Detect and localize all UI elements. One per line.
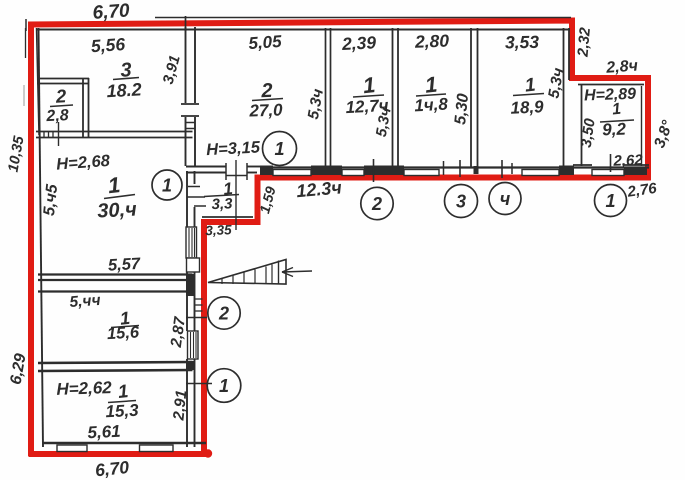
svg-text:2,8: 2,8 <box>45 107 69 125</box>
svg-text:5,57: 5,57 <box>108 255 142 275</box>
svg-text:2,8ч: 2,8ч <box>605 58 639 77</box>
svg-text:1: 1 <box>107 172 122 198</box>
svg-text:5,56: 5,56 <box>90 34 126 56</box>
svg-text:30,ч: 30,ч <box>97 198 138 222</box>
svg-text:1: 1 <box>524 75 537 97</box>
svg-text:3,3: 3,3 <box>211 195 233 213</box>
svg-text:1: 1 <box>162 175 172 195</box>
svg-text:H=2,62: H=2,62 <box>56 378 112 399</box>
svg-text:18.2: 18.2 <box>106 79 142 101</box>
svg-text:1: 1 <box>605 191 615 211</box>
svg-text:1: 1 <box>362 72 377 98</box>
svg-text:1: 1 <box>274 139 284 159</box>
svg-text:1: 1 <box>117 380 129 402</box>
svg-text:6,70: 6,70 <box>94 457 130 480</box>
svg-text:5,61: 5,61 <box>87 422 121 443</box>
svg-text:3,35: 3,35 <box>205 222 232 238</box>
svg-text:2: 2 <box>218 303 229 323</box>
svg-text:2: 2 <box>371 194 382 214</box>
svg-text:15,6: 15,6 <box>107 323 141 343</box>
svg-text:3: 3 <box>456 191 466 211</box>
svg-text:5,ч5: 5,ч5 <box>41 182 61 216</box>
svg-text:1: 1 <box>219 376 229 396</box>
svg-text:2,80: 2,80 <box>414 31 450 52</box>
svg-text:6,70: 6,70 <box>92 0 131 24</box>
svg-text:12.3ч: 12.3ч <box>295 177 343 201</box>
svg-text:5,30: 5,30 <box>452 93 472 126</box>
svg-text:27,0: 27,0 <box>248 100 283 120</box>
svg-text:ч: ч <box>500 189 511 209</box>
svg-text:2: 2 <box>54 85 67 107</box>
svg-text:H=2,89: H=2,89 <box>584 86 637 105</box>
svg-text:9,2: 9,2 <box>602 120 627 140</box>
svg-text:15,3: 15,3 <box>105 401 140 422</box>
svg-text:1ч,8: 1ч,8 <box>414 95 449 116</box>
svg-text:2,32: 2,32 <box>574 26 594 58</box>
svg-text:1: 1 <box>611 101 622 119</box>
svg-text:H=2,68: H=2,68 <box>56 152 112 174</box>
svg-text:5,05: 5,05 <box>248 32 283 53</box>
svg-text:2,91: 2,91 <box>170 389 190 422</box>
svg-text:2,39: 2,39 <box>340 32 376 54</box>
svg-text:3,53: 3,53 <box>505 32 540 53</box>
svg-text:H=3,15: H=3,15 <box>206 138 261 159</box>
svg-text:5,чч: 5,чч <box>69 292 101 311</box>
svg-text:18,9: 18,9 <box>510 97 545 118</box>
svg-text:1: 1 <box>424 72 439 98</box>
svg-text:2,62: 2,62 <box>612 152 643 170</box>
